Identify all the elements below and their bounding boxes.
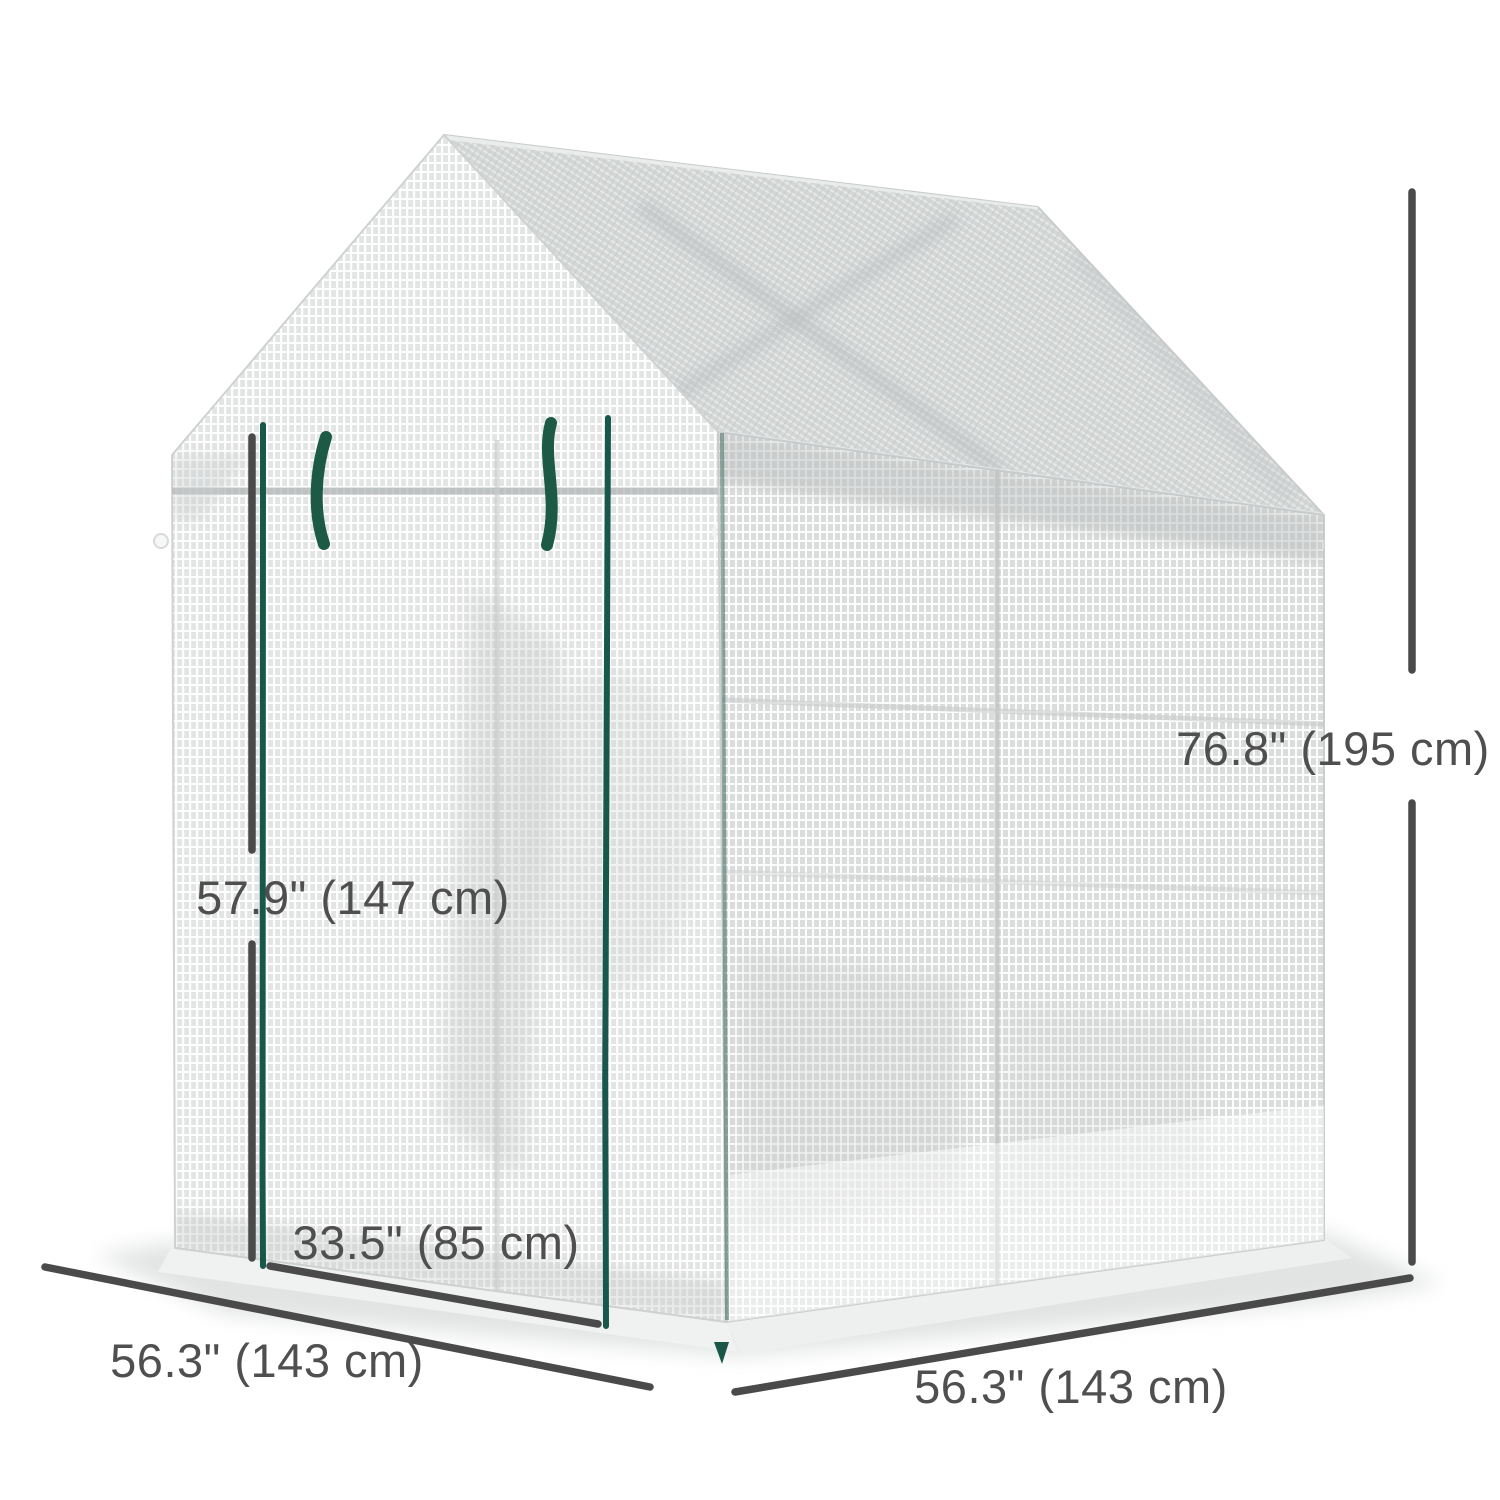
cover-tie [154, 534, 168, 548]
door-zipper-right [605, 418, 608, 1326]
product-dimension-diagram: 76.8" (195 cm) 57.9" (147 cm) 33.5" (85 … [0, 0, 1500, 1500]
side-panel [718, 432, 1337, 1322]
dimension-label-base-width: 56.3" (143 cm) [110, 1334, 424, 1387]
dimension-label-base-depth: 56.3" (143 cm) [914, 1360, 1228, 1413]
greenhouse-illustration: 76.8" (195 cm) 57.9" (147 cm) 33.5" (85 … [0, 0, 1500, 1500]
interior-shadow [520, 670, 700, 990]
dimension-label-overall-height: 76.8" (195 cm) [1176, 722, 1490, 775]
dimension-label-door-width: 33.5" (85 cm) [292, 1216, 579, 1269]
door-zipper-left [262, 425, 264, 1266]
door-handle-right [547, 423, 552, 545]
dimension-label-door-height: 57.9" (147 cm) [196, 871, 510, 924]
